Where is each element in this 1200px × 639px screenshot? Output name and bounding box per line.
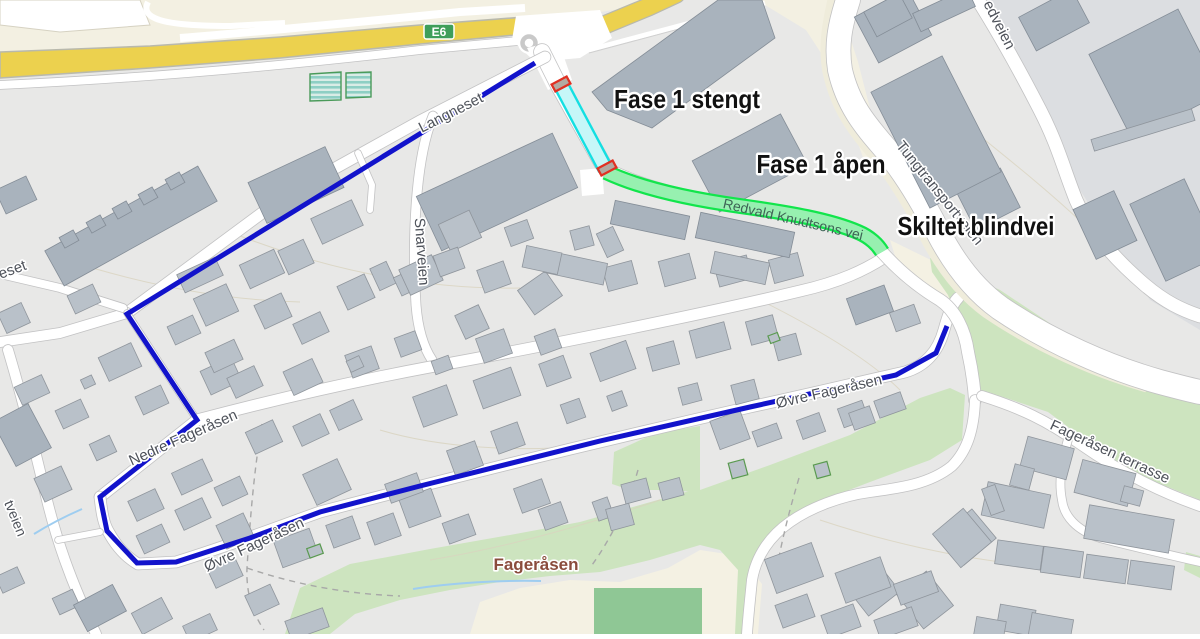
svg-text:E6: E6 (432, 25, 447, 39)
svg-text:Fase 1 åpen: Fase 1 åpen (757, 149, 886, 179)
svg-text:Skiltet blindvei: Skiltet blindvei (898, 211, 1055, 241)
svg-text:Fase 1 stengt: Fase 1 stengt (614, 84, 760, 114)
svg-text:Fageråsen: Fageråsen (493, 555, 578, 574)
